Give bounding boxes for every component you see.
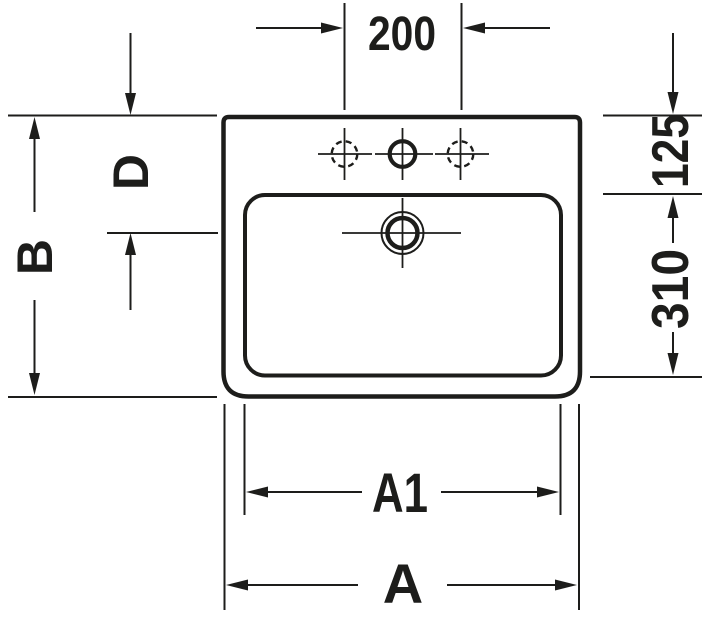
drain-icon — [342, 198, 461, 268]
dimension-rim-inset: 125 — [603, 33, 702, 194]
dimension-drain-offset: D — [103, 33, 218, 310]
arrowhead-up-icon — [29, 117, 40, 139]
dimension-bowl-width: A1 — [245, 404, 561, 524]
arrowhead-left-icon — [226, 580, 248, 591]
washbasin-dimension-drawing: 200 D B 125 310 — [0, 0, 704, 617]
dim-label-bowl-depth: 310 — [642, 249, 700, 329]
faucet-hole-left-optional-icon — [318, 128, 372, 180]
arrowhead-left-icon — [246, 487, 268, 498]
arrowhead-right-icon — [321, 23, 343, 34]
arrowhead-down-icon — [668, 353, 679, 375]
dim-label-depth-total: B — [7, 239, 63, 275]
arrowhead-left-icon — [463, 23, 485, 34]
dimension-bowl-depth: 310 — [590, 196, 702, 377]
arrowhead-up-icon — [668, 196, 679, 218]
dim-label-faucet-spacing: 200 — [368, 8, 436, 61]
dim-label-drain-offset: D — [103, 154, 159, 190]
dim-label-overall-width: A — [383, 552, 423, 615]
arrowhead-right-icon — [537, 487, 559, 498]
arrowhead-down-icon — [29, 373, 40, 395]
dim-label-bowl-width: A1 — [372, 461, 428, 524]
arrowhead-down-icon — [125, 93, 136, 115]
arrowhead-down-icon — [668, 92, 679, 114]
drawing-svg: 200 D B 125 310 — [0, 0, 704, 617]
arrowhead-up-icon — [125, 233, 136, 255]
dim-label-rim-inset: 125 — [642, 114, 700, 188]
faucet-hole-right-optional-icon — [435, 128, 489, 180]
dimension-faucet-spacing: 200 — [256, 3, 550, 110]
faucet-hole-center-icon — [375, 128, 433, 180]
arrowhead-right-icon — [555, 580, 577, 591]
